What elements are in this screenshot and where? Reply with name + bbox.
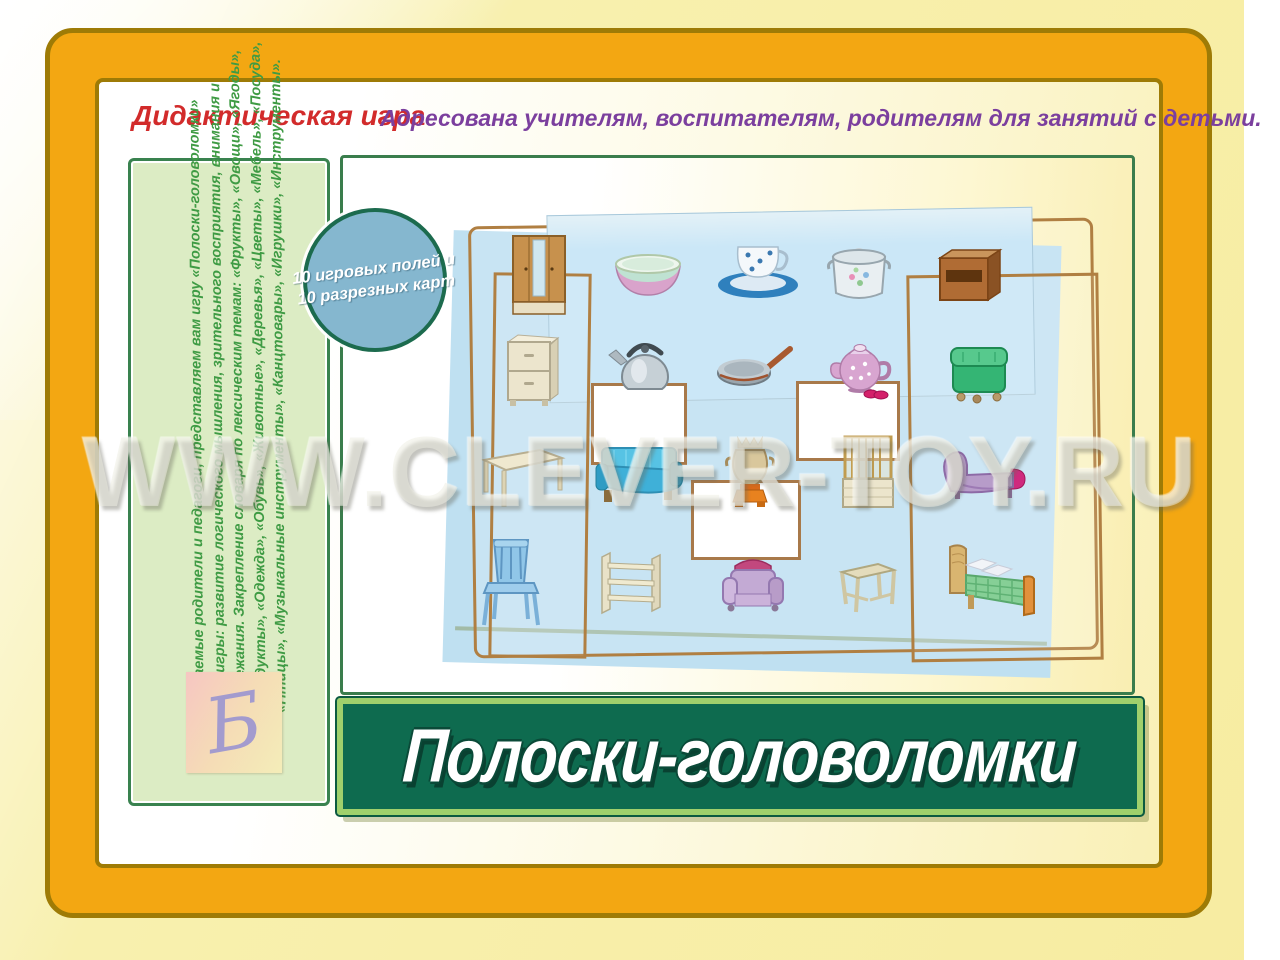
pouf-icon <box>947 342 1011 404</box>
bowl-icon <box>612 250 684 300</box>
stool-icon <box>836 560 898 616</box>
frying-pan-icon <box>716 343 794 389</box>
kettle-icon <box>605 335 675 401</box>
sofa-icon <box>592 444 684 508</box>
background-right-strip <box>1244 0 1280 960</box>
crib-icon <box>840 433 896 513</box>
sidebar-description-text: Уважаемые родители и педагоги, представл… <box>184 113 297 714</box>
chair-icon <box>478 537 544 629</box>
dresser-icon <box>504 332 562 410</box>
publisher-logo: Б <box>186 672 282 773</box>
chaise-lounge-icon <box>933 445 1033 501</box>
description-line-5: «Птицы», «Музыкальные инструменты», «Кан… <box>266 113 292 713</box>
header-audience-text: Адресована учителям, воспитателям, родит… <box>380 105 1262 132</box>
red-slippers-icon <box>863 387 889 401</box>
board-illustration <box>340 155 1135 695</box>
wardrobe-icon <box>510 233 568 317</box>
cup-and-saucer-icon <box>716 241 800 299</box>
pot-icon <box>826 243 892 303</box>
table-icon <box>480 444 566 512</box>
shelf-icon <box>594 551 668 615</box>
game-box-cover: Дидактическая игра Адресована учителям, … <box>0 0 1280 960</box>
bed-icon <box>944 543 1042 623</box>
title-banner: Полоски-головоломки <box>337 698 1143 815</box>
armchair-icon <box>717 552 789 614</box>
contents-badge: 10 игровых полей и 10 разрезных карт <box>303 208 447 352</box>
teapot-icon <box>825 336 895 394</box>
contents-badge-text: 10 игровых полей и 10 разрезных карт <box>291 250 459 311</box>
game-title: Полоски-головоломки <box>401 713 1079 800</box>
samovar-icon <box>723 436 777 510</box>
bedside-table-icon <box>934 244 1006 306</box>
publisher-logo-letter: Б <box>200 680 268 765</box>
